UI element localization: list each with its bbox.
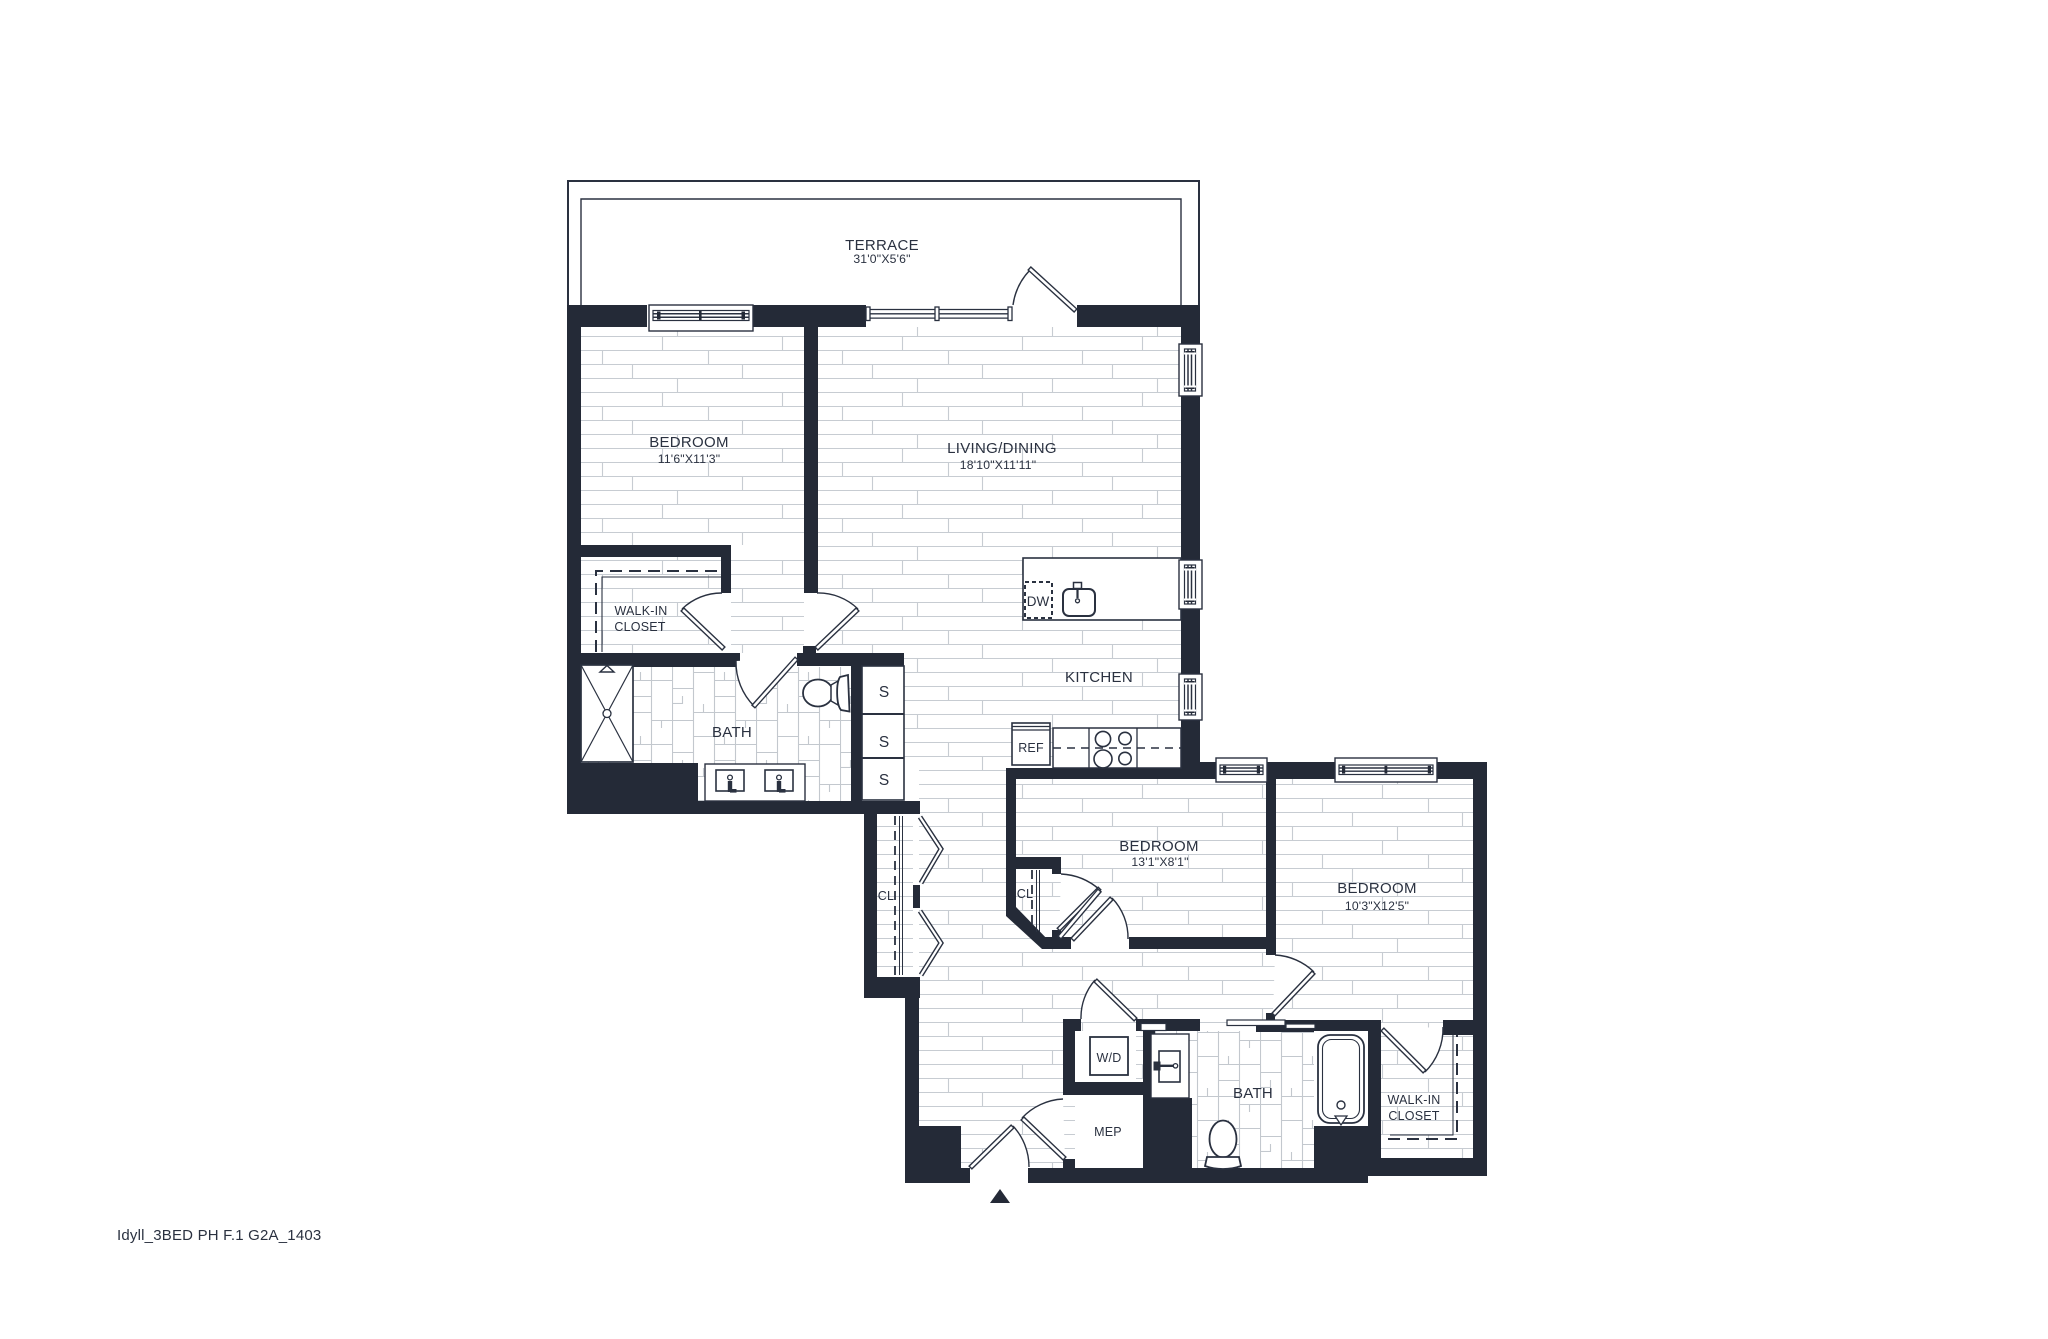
svg-text:KITCHEN: KITCHEN [1065, 669, 1133, 686]
svg-text:13'1"X8'1": 13'1"X8'1" [1131, 855, 1188, 869]
svg-text:MEP: MEP [1094, 1125, 1122, 1139]
svg-text:BEDROOM: BEDROOM [1119, 838, 1199, 855]
svg-text:11'6"X11'3": 11'6"X11'3" [658, 452, 721, 466]
svg-text:BEDROOM: BEDROOM [649, 434, 729, 451]
svg-text:CL: CL [878, 889, 894, 903]
svg-text:WALK-IN: WALK-IN [614, 604, 667, 618]
svg-text:CLOSET: CLOSET [614, 620, 665, 634]
svg-text:REF: REF [1018, 741, 1044, 755]
svg-text:BEDROOM: BEDROOM [1337, 880, 1417, 897]
svg-text:LIVING/DINING: LIVING/DINING [947, 440, 1057, 457]
svg-text:S: S [879, 734, 889, 751]
svg-text:S: S [879, 772, 889, 789]
svg-text:W/D: W/D [1097, 1051, 1122, 1065]
svg-text:18'10"X11'11": 18'10"X11'11" [960, 458, 1036, 472]
svg-text:BATH: BATH [712, 724, 752, 741]
svg-text:BATH: BATH [1233, 1085, 1273, 1102]
svg-text:CLOSET: CLOSET [1388, 1109, 1439, 1123]
svg-text:Idyll_3BED PH F.1 G2A_1403: Idyll_3BED PH F.1 G2A_1403 [117, 1227, 321, 1244]
svg-text:S: S [879, 684, 889, 701]
svg-text:CL: CL [1017, 887, 1033, 901]
svg-text:DW: DW [1027, 594, 1050, 609]
svg-text:10'3"X12'5": 10'3"X12'5" [1345, 899, 1409, 913]
svg-text:31'0"X5'6": 31'0"X5'6" [853, 252, 910, 266]
svg-text:WALK-IN: WALK-IN [1387, 1093, 1440, 1107]
